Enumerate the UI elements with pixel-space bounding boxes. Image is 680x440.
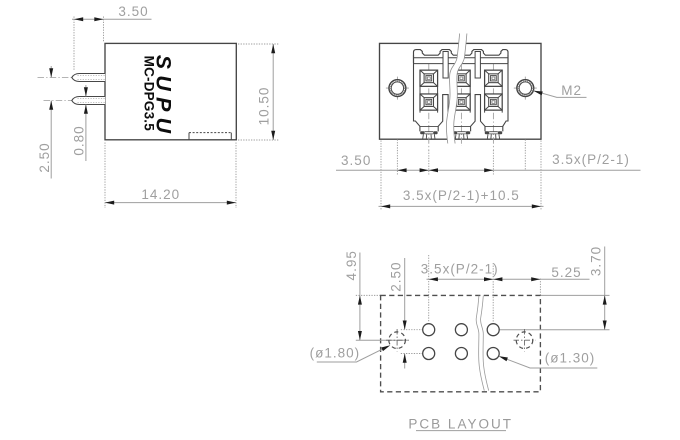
svg-text:3.50: 3.50	[341, 153, 371, 168]
svg-text:14.20: 14.20	[141, 187, 180, 202]
svg-text:4.95: 4.95	[344, 250, 359, 280]
svg-text:M2: M2	[561, 83, 582, 98]
svg-text:0.80: 0.80	[72, 125, 87, 155]
svg-text:(ø1.80): (ø1.80)	[310, 345, 361, 360]
svg-text:3.70: 3.70	[588, 246, 603, 276]
svg-text:5.25: 5.25	[551, 265, 581, 280]
svg-text:2.50: 2.50	[37, 142, 52, 172]
svg-text:2.50: 2.50	[388, 261, 403, 291]
svg-text:3.5x(P/2-1): 3.5x(P/2-1)	[421, 262, 499, 277]
svg-text:3.5x(P/2-1)+10.5: 3.5x(P/2-1)+10.5	[403, 188, 520, 203]
svg-text:3.50: 3.50	[118, 4, 148, 19]
svg-text:MC-DPG3.5: MC-DPG3.5	[142, 56, 157, 132]
svg-text:PCB LAYOUT: PCB LAYOUT	[408, 417, 513, 432]
svg-text:10.50: 10.50	[257, 87, 272, 126]
svg-text:(ø1.30): (ø1.30)	[545, 351, 596, 366]
svg-text:3.5x(P/2-1): 3.5x(P/2-1)	[552, 152, 630, 167]
